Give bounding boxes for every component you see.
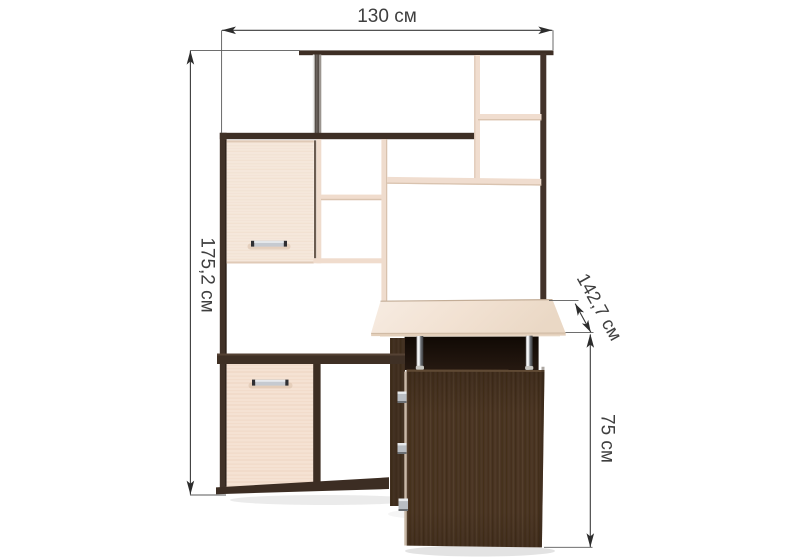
svg-text:75 см: 75 см (597, 414, 618, 463)
svg-text:175,2 см: 175,2 см (197, 237, 218, 312)
svg-text:130 см: 130 см (357, 6, 417, 27)
